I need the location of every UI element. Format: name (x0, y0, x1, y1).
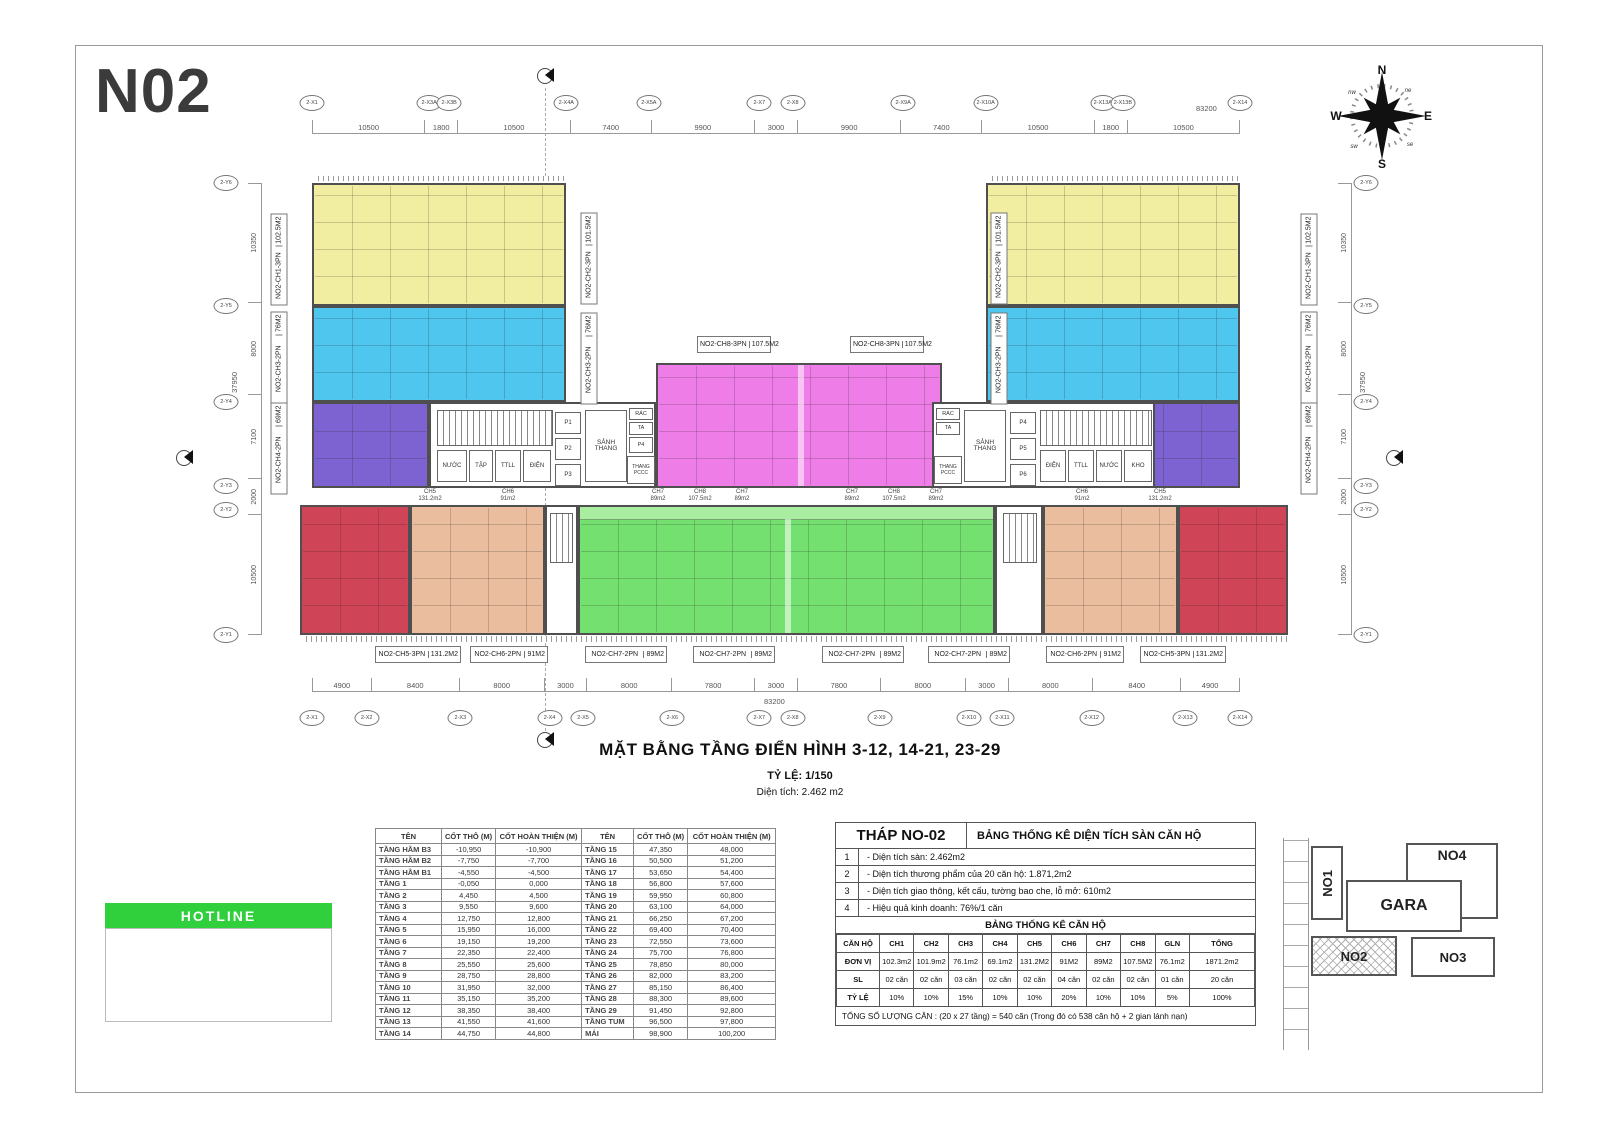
elevation-cell: TẦNG 25 (582, 959, 634, 971)
unit-grid-header: GLN (1155, 935, 1190, 953)
unit-label-ch1: NO2-CH1-3PN102.5M2 (1301, 214, 1318, 306)
elevation-cell: TẦNG 1 (376, 878, 442, 890)
section-marker (176, 450, 192, 466)
dimension-segment: 8000 (459, 678, 544, 691)
unit-grid-cell: 69.1m2 (983, 953, 1017, 971)
unit-label-ch2: NO2-CH2-3PN101.5M2 (991, 213, 1008, 305)
grid-bubble: 2-Y6 (1354, 175, 1379, 191)
grid-bubble: 2-Y5 (214, 298, 239, 314)
unit-name: NO2-CH7-2PN (586, 651, 643, 658)
elevation-cell: -10,950 (442, 844, 496, 856)
elevation-cell: TẦNG 14 (376, 1028, 442, 1040)
elevation-row: TẦNG HẦM B3-10,950-10,900TẦNG 1547,35048… (376, 844, 776, 856)
unit-grid-cell: 91M2 (1052, 953, 1086, 971)
elevation-cell: TẦNG 8 (376, 959, 442, 971)
unit-label-ch2: NO2-CH2-3PN101.5M2 (581, 213, 598, 305)
elevation-cell: -7,750 (442, 855, 496, 867)
apartment-stats-table: THÁP NO-02 BẢNG THỐNG KÊ DIỆN TÍCH SÀN C… (835, 822, 1256, 1026)
note-text: - Diện tích thương phẩm của 20 căn hộ: 1… (859, 869, 1072, 879)
unit-name: NO2-CH1-3PN (276, 247, 283, 305)
section-marker (1386, 450, 1402, 466)
room-water: NƯỚC (437, 450, 467, 482)
elevator-p3: P3 (555, 464, 581, 486)
corridor-label: CH789m2 (639, 489, 677, 502)
unit-label-ch7: NO2-CH7-2PN89M2 (822, 646, 904, 663)
unit-area: 89M2 (643, 651, 666, 658)
elevation-table-header: TÊNCỐT THÔ (M)CỐT HOÀN THIỆN (M)TÊNCỐT T… (376, 829, 776, 844)
stair-left (437, 410, 553, 446)
unit-grid-header: CH6 (1052, 935, 1086, 953)
compass-n-label: N (1378, 64, 1387, 77)
unit-name: NO2-CH5-3PN (1141, 651, 1193, 658)
unit-area: 91M2 (1100, 651, 1123, 658)
room-electric: ĐIỆN (523, 450, 551, 482)
elevation-cell: -7,700 (496, 855, 582, 867)
stair-lobby-left: SẢNH THANG (585, 410, 627, 482)
unit-name: NO2-CH3-2PN (1306, 335, 1313, 402)
apartment-ch3-zone-left (312, 306, 566, 402)
site-plan: NO1 NO4 GARA NO2 NO3 (1275, 820, 1565, 1060)
top-total-dimension: 83200 (1196, 104, 1217, 113)
unit-name: NO2-CH2-3PN (586, 246, 593, 304)
unit-name: NO2-CH8-3PN (851, 341, 902, 348)
unit-name: NO2-CH8-3PN (698, 341, 749, 348)
dimension-segment: 8000 (880, 678, 965, 691)
unit-label-ch5: NO2-CH5-3PN131.2M2 (1140, 646, 1226, 663)
elevator-p1: P1 (555, 412, 581, 434)
unit-stats-subtitle: BẢNG THỐNG KÊ CĂN HỘ (836, 917, 1255, 934)
unit-grid-cell: 02 căn (983, 971, 1017, 989)
elevation-row: TẦNG 928,75028,800TẦNG 2682,00083,200 (376, 970, 776, 982)
grid-bubble: 2-X12 (1079, 710, 1104, 726)
dimension-segment: 10500 (312, 120, 424, 133)
unit-area: 107.5M2 (902, 341, 934, 348)
corridor-label: CH691m2 (1063, 489, 1101, 502)
elevation-cell: 16,000 (496, 924, 582, 936)
site-building-no2: NO2 (1311, 936, 1397, 976)
grid-bubble: 2-X5 (571, 710, 596, 726)
elevation-cell: 72,550 (634, 936, 688, 948)
stats-note-row: 4- Hiệu quả kinh doanh: 76%/1 căn (836, 900, 1255, 917)
unit-grid-cell: 02 căn (1121, 971, 1155, 989)
elevation-cell: TẦNG 23 (582, 936, 634, 948)
elevation-cell: TẦNG 13 (376, 1016, 442, 1028)
elevation-cell: 51,200 (688, 855, 776, 867)
grid-bubble: 2-X1 (300, 95, 325, 111)
elevation-row: TẦNG 412,75012,800TẦNG 2166,25067,200 (376, 913, 776, 925)
unit-name: NO2-CH4-2PN (276, 426, 283, 493)
unit-grid-cell: 02 căn (1086, 971, 1120, 989)
elevation-cell: TẦNG 17 (582, 867, 634, 879)
corridor-label: CH5131.2m2 (411, 489, 449, 502)
dimension-segment: 3000 (544, 678, 587, 691)
corridor-label: CH8107.5m2 (875, 489, 913, 502)
elevation-cell: 38,400 (496, 1005, 582, 1017)
unit-grid-cell: 1871.2m2 (1190, 953, 1255, 971)
grid-bubble: 2-X9A (891, 95, 916, 111)
elevation-cell: 85,150 (634, 982, 688, 994)
elevation-cell: 44,750 (442, 1028, 496, 1040)
grid-bubble: 2-Y2 (214, 502, 239, 518)
elevation-cell: 56,800 (634, 878, 688, 890)
elevation-cell: 76,800 (688, 947, 776, 959)
elevation-cell: TẦNG HẦM B3 (376, 844, 442, 856)
unit-grid-header: CH7 (1086, 935, 1120, 953)
elevation-cell: 31,950 (442, 982, 496, 994)
elevation-column-header: CỐT HOÀN THIỆN (M) (688, 829, 776, 844)
apartment-ch1-ch2-zone-right (986, 183, 1240, 306)
compass-s-label: S (1378, 157, 1386, 168)
elevation-cell: 97,800 (688, 1016, 776, 1028)
elevation-cell: TẦNG 10 (376, 982, 442, 994)
elevation-cell: 19,150 (442, 936, 496, 948)
elevation-cell: 12,800 (496, 913, 582, 925)
core-left: NƯỚC TẬP TTLL ĐIỆN P1 P2 P3 SẢNH THANG R… (429, 402, 656, 488)
unit-area: 89M2 (880, 651, 903, 658)
unit-grid-cell: 10% (1017, 989, 1051, 1007)
dimension-segment: 9900 (651, 120, 754, 133)
elevation-cell: 75,700 (634, 947, 688, 959)
elevation-cell: 91,450 (634, 1005, 688, 1017)
unit-grid-cell: 03 căn (948, 971, 982, 989)
elevation-cell: 22,400 (496, 947, 582, 959)
hotline-header: HOTLINE (105, 903, 332, 928)
apartment-ch6-left (410, 505, 545, 635)
elevation-cell: -4,500 (496, 867, 582, 879)
unit-area: 131.2M2 (428, 651, 460, 658)
elevation-row: TẦNG 722,35022,400TẦNG 2475,70076,800 (376, 947, 776, 959)
elevation-row: TẦNG 1238,35038,400TẦNG 2991,45092,800 (376, 1005, 776, 1017)
elevation-cell: 0,000 (496, 878, 582, 890)
right-dimension-column: 1035080007100200010500 (1338, 183, 1352, 635)
elevation-cell: TẦNG TUM (582, 1016, 634, 1028)
dimension-segment: 10500 (1338, 514, 1351, 634)
compass-e-label: E (1424, 109, 1432, 123)
unit-grid-cell: 102.3m2 (880, 953, 914, 971)
unit-name: NO2-CH4-2PN (1306, 426, 1313, 493)
elevation-cell: TẦNG 9 (376, 970, 442, 982)
room-ttll: TTLL (495, 450, 521, 482)
dimension-segment: 7800 (671, 678, 754, 691)
elevator-bank-right: P4 P5 P6 (1010, 412, 1036, 486)
elevation-cell: 83,200 (688, 970, 776, 982)
elevation-cell: TẦNG 16 (582, 855, 634, 867)
unit-area: 89M2 (986, 651, 1009, 658)
elevation-cell: 57,600 (688, 878, 776, 890)
grid-bubble: 2-Y6 (214, 175, 239, 191)
note-text: - Diện tích giao thông, kết cấu, tường b… (859, 886, 1111, 896)
unit-area: 101.5M2 (996, 214, 1003, 246)
elevation-cell: TẦNG HẦM B2 (376, 855, 442, 867)
stair-tower-right (995, 505, 1043, 635)
unit-grid-header: CH1 (880, 935, 914, 953)
elevation-cell: 98,900 (634, 1028, 688, 1040)
stats-notes: 1- Diện tích sàn: 2.462m22- Diện tích th… (836, 849, 1255, 917)
grid-bubble: 2-X11 (990, 710, 1015, 726)
unit-grid-cell: 10% (914, 989, 948, 1007)
unit-name: NO2-CH6-2PN (1047, 651, 1100, 658)
elevation-row: TẦNG HẦM B1-4,550-4,500TẦNG 1753,65054,4… (376, 867, 776, 879)
dimension-segment: 7800 (797, 678, 880, 691)
dimension-segment: 7400 (900, 120, 981, 133)
elevation-row: TẦNG 1031,95032,000TẦNG 2785,15086,400 (376, 982, 776, 994)
unit-grid-cell: 76.1m2 (1155, 953, 1190, 971)
elevation-column-header: TÊN (582, 829, 634, 844)
elevation-row: TẦNG 24,4504,500TẦNG 1959,95060,800 (376, 890, 776, 902)
unit-divider (785, 519, 791, 635)
unit-label-ch1: NO2-CH1-3PN102.5M2 (271, 214, 288, 306)
elevation-column-header: TÊN (376, 829, 442, 844)
unit-area: 76M2 (1306, 313, 1313, 336)
elevation-row: TẦNG 825,55025,600TẦNG 2578,85080,000 (376, 959, 776, 971)
elevator-p6: P6 (1010, 464, 1036, 486)
compass-w-label: W (1330, 109, 1342, 123)
elevation-cell: 28,750 (442, 970, 496, 982)
room-trash: RÁC (936, 408, 960, 420)
elevation-cell: TẦNG 22 (582, 924, 634, 936)
unit-grid-cell: 89M2 (1086, 953, 1120, 971)
stair-right (1040, 410, 1152, 446)
elevation-cell: TẦNG 24 (582, 947, 634, 959)
unit-area: 131.2M2 (1193, 651, 1225, 658)
elevation-cell: 44,800 (496, 1028, 582, 1040)
grid-bubble: 2-X6 (660, 710, 685, 726)
unit-label-ch4: NO2-CH4-2PN69M2 (1301, 403, 1318, 495)
dimension-segment: 10500 (1127, 120, 1239, 133)
unit-grid-header-row: CĂN HỘCH1CH2CH3CH4CH5CH6CH7CH8GLNTỔNG (837, 935, 1255, 953)
unit-grid-cell: 20% (1052, 989, 1086, 1007)
elevation-row: TẦNG HẦM B2-7,750-7,700TẦNG 1650,50051,2… (376, 855, 776, 867)
elevator-p4: P4 (1010, 412, 1036, 434)
elevation-cell: 47,350 (634, 844, 688, 856)
unit-grid-cell: 100% (1190, 989, 1255, 1007)
elevation-cell: 82,000 (634, 970, 688, 982)
elevation-cell: 54,400 (688, 867, 776, 879)
elevation-cell: 59,950 (634, 890, 688, 902)
unit-area: 76M2 (276, 313, 283, 336)
unit-divider (798, 365, 804, 486)
unit-grid-cell: 10% (880, 989, 914, 1007)
elevation-cell: 69,400 (634, 924, 688, 936)
dimension-segment: 9900 (797, 120, 900, 133)
grid-bubble: 2-X5A (636, 95, 661, 111)
unit-grid-header: CH2 (914, 935, 948, 953)
section-marker (537, 732, 553, 748)
unit-name: NO2-CH3-2PN (586, 336, 593, 403)
grid-bubble: 2-X7 (747, 95, 772, 111)
apartment-ch5-left (300, 505, 410, 635)
dimension-segment: 3000 (754, 120, 798, 133)
stair-tower-left (545, 505, 578, 635)
elevation-cell: TẦNG 5 (376, 924, 442, 936)
unit-grid-header: CH3 (948, 935, 982, 953)
unit-name: NO2-CH2-3PN (996, 246, 1003, 304)
unit-grid-cell: 10% (1086, 989, 1120, 1007)
unit-grid-cell: 02 căn (914, 971, 948, 989)
elevation-cell: 9,600 (496, 901, 582, 913)
elevation-cell: 48,000 (688, 844, 776, 856)
unit-stats-grid: CĂN HỘCH1CH2CH3CH4CH5CH6CH7CH8GLNTỔNGĐƠN… (836, 934, 1255, 1007)
dimension-segment: 10350 (1338, 183, 1351, 302)
dimension-segment: 8000 (1338, 302, 1351, 395)
elevation-cell: 50,500 (634, 855, 688, 867)
dimension-segment: 10500 (457, 120, 569, 133)
unit-grid-cell: TỶ LỆ (837, 989, 880, 1007)
elevation-row: TẦNG 1-0,0500,000TẦNG 1856,80057,600 (376, 878, 776, 890)
dimension-segment: 1800 (1094, 120, 1127, 133)
unit-name: NO2-CH1-3PN (1306, 247, 1313, 305)
unit-area: 89M2 (751, 651, 774, 658)
unit-label-ch7: NO2-CH7-2PN89M2 (928, 646, 1010, 663)
elevation-cell: 89,600 (688, 993, 776, 1005)
elevation-cell: 41,550 (442, 1016, 496, 1028)
grid-bubble: 2-X7 (747, 710, 772, 726)
elevation-cell: 32,000 (496, 982, 582, 994)
elevation-cell: 53,650 (634, 867, 688, 879)
stats-footer: TỔNG SỐ LƯỢNG CĂN : (20 x 27 tầng) = 540… (836, 1007, 1255, 1025)
grid-bubble: 2-X4A (554, 95, 579, 111)
grid-bubble: 2-X4 (537, 710, 562, 726)
elevation-cell: TẦNG 4 (376, 913, 442, 925)
unit-area: 102.5M2 (1306, 215, 1313, 247)
elevation-cell: 35,200 (496, 993, 582, 1005)
unit-label-ch5: NO2-CH5-3PN131.2M2 (375, 646, 461, 663)
unit-grid-header: CH4 (983, 935, 1017, 953)
apartment-ch7-zone (578, 505, 995, 635)
elevation-cell: 35,150 (442, 993, 496, 1005)
unit-label-ch7: NO2-CH7-2PN89M2 (693, 646, 775, 663)
unit-name: NO2-CH3-2PN (276, 335, 283, 402)
stats-title: BẢNG THỐNG KÊ DIỆN TÍCH SÀN CĂN HỘ (967, 823, 1255, 848)
elevation-cell: 19,200 (496, 936, 582, 948)
hotline-box (105, 928, 332, 1022)
unit-name: NO2-CH6-2PN (471, 651, 524, 658)
unit-area: 76M2 (996, 314, 1003, 337)
dimension-segment: 8400 (371, 678, 459, 691)
unit-grid-cell: 5% (1155, 989, 1190, 1007)
apartment-ch1-ch2-zone-left (312, 183, 566, 306)
elevation-cell: 60,800 (688, 890, 776, 902)
elevation-cell: 92,800 (688, 1005, 776, 1017)
grid-bubble: 2-X3 (448, 710, 473, 726)
grid-bubble: 2-Y1 (214, 627, 239, 643)
elevation-cell: 86,400 (688, 982, 776, 994)
apartment-ch3-zone-right (986, 306, 1240, 402)
dimension-segment: 10500 (248, 514, 261, 634)
left-dimension-column: 1035080007100200010500 (248, 183, 262, 635)
unit-label-ch8: NO2-CH8-3PN107.5M2 (697, 336, 771, 353)
note-text: - Hiệu quả kinh doanh: 76%/1 căn (859, 903, 1003, 913)
core-right: RÁC TA THANG PCCC SẢNH THANG P4 P5 P6 ĐI… (932, 402, 1155, 488)
unit-grid-header: CH5 (1017, 935, 1051, 953)
grid-bubble: 2-X8 (780, 95, 805, 111)
elevation-cell: TẦNG 27 (582, 982, 634, 994)
elevation-cell: 15,950 (442, 924, 496, 936)
grid-bubble: 2-X14 (1228, 710, 1253, 726)
corridor-label: CH789m2 (723, 489, 761, 502)
unit-label-ch3: NO2-CH3-2PN76M2 (991, 313, 1008, 405)
elevation-cell: 96,500 (634, 1016, 688, 1028)
elevation-cell: TẦNG 2 (376, 890, 442, 902)
unit-label-ch6: NO2-CH6-2PN91M2 (470, 646, 548, 663)
grid-bubble: 2-X8 (780, 710, 805, 726)
top-dimension-row: 1050018001050074009900300099007400105001… (312, 120, 1240, 134)
unit-grid-cell: 101.9m2 (914, 953, 948, 971)
stair (1003, 513, 1037, 563)
elevation-cell: 64,000 (688, 901, 776, 913)
corridor-label: CH691m2 (489, 489, 527, 502)
bottom-dimension-row: 4900840080003000800078003000780080003000… (312, 678, 1240, 692)
site-building-gara: GARA (1346, 880, 1462, 932)
corridor-label: CH789m2 (833, 489, 871, 502)
unit-label-ch3: NO2-CH3-2PN76M2 (581, 313, 598, 405)
fire-stair-right: THANG PCCC (934, 456, 962, 484)
elevation-cell: 25,550 (442, 959, 496, 971)
unit-grid-cell: SL (837, 971, 880, 989)
dimension-segment: 4900 (312, 678, 371, 691)
grid-bubble: 2-X1 (300, 710, 325, 726)
grid-bubble: 2-Y3 (1354, 478, 1379, 494)
unit-area: 107.5M2 (749, 341, 781, 348)
elevation-cell: TẦNG 7 (376, 947, 442, 959)
tower-name: THÁP NO-02 (836, 823, 967, 848)
bottom-total-dimension: 83200 (764, 697, 785, 706)
unit-grid-cell: 02 căn (880, 971, 914, 989)
elevator-p5: P5 (1010, 438, 1036, 460)
elevation-cell: -0,050 (442, 878, 496, 890)
site-building-no1: NO1 (1311, 846, 1343, 920)
note-number: 4 (836, 900, 859, 916)
elevation-cell: 38,350 (442, 1005, 496, 1017)
dimension-segment: 10350 (248, 183, 261, 302)
grid-bubble: 2-X13B (1110, 95, 1135, 111)
elevation-cell: TẦNG 19 (582, 890, 634, 902)
room-ta: TA (629, 422, 653, 435)
elevation-cell: TẦNG 12 (376, 1005, 442, 1017)
elevation-cell: 67,200 (688, 913, 776, 925)
unit-grid-header: TỔNG (1190, 935, 1255, 953)
room-gym: TẬP (469, 450, 493, 482)
unit-area: 102.5M2 (276, 215, 283, 247)
elevation-row: TẦNG 515,95016,000TẦNG 2269,40070,400 (376, 924, 776, 936)
elevation-cell: 25,600 (496, 959, 582, 971)
corridor-label: CH8107.5m2 (681, 489, 719, 502)
room-ttll: TTLL (1068, 450, 1094, 482)
corridor-label: CH789m2 (917, 489, 955, 502)
unit-grid-cell: 10% (983, 989, 1017, 1007)
elevation-cell: TẦNG 21 (582, 913, 634, 925)
note-number: 1 (836, 849, 859, 865)
elevator-bank-left: P1 P2 P3 (555, 412, 581, 486)
unit-label-ch7: NO2-CH7-2PN89M2 (585, 646, 667, 663)
elevator-p4: P4 (629, 437, 653, 453)
compass-rose: N E S W ne se sw nw (1330, 64, 1434, 168)
elevation-cell: TẦNG 15 (582, 844, 634, 856)
dimension-segment: 7100 (1338, 394, 1351, 478)
grid-bubble: 2-X3B (437, 95, 462, 111)
plan-area: Diện tích: 2.462 m2 (480, 787, 1120, 798)
elevation-row: TẦNG 1444,75044,800MÁI98,900100,200 (376, 1028, 776, 1040)
elevation-column-header: CỐT HOÀN THIỆN (M) (496, 829, 582, 844)
compass-nw-label: nw (1348, 90, 1356, 96)
dimension-segment: 2000 (248, 478, 261, 514)
grid-bubble: 2-X10A (973, 95, 998, 111)
unit-name: NO2-CH7-2PN (694, 651, 751, 658)
unit-grid-cell: 01 căn (1155, 971, 1190, 989)
unit-area: 76M2 (586, 314, 593, 337)
unit-grid-header: CH8 (1121, 935, 1155, 953)
elevation-row: TẦNG 1135,15035,200TẦNG 2888,30089,600 (376, 993, 776, 1005)
